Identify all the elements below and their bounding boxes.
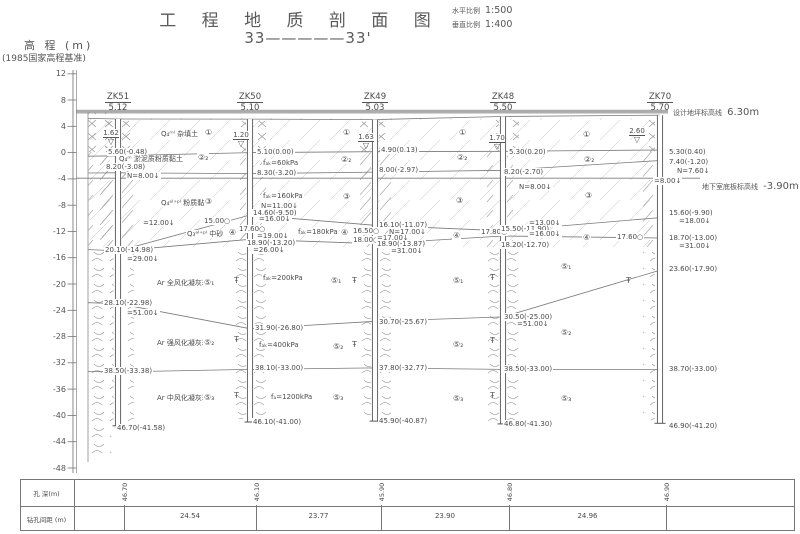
water-table-icon: ▽	[624, 137, 650, 143]
elevation-axis	[68, 70, 77, 473]
axis-tick-label: -44	[40, 437, 66, 446]
sample-marker-icon: Ŧ	[352, 341, 357, 349]
layer-number-label: ⑤₁	[203, 278, 215, 287]
water-level-mark: 1.70▽	[484, 125, 510, 150]
depth-label: 18.70(-13.00)	[668, 234, 718, 242]
borehole-id: ZK49	[362, 92, 388, 103]
layer-number-label: ④	[582, 233, 591, 242]
layer-number-label: ⑤₁	[452, 276, 464, 285]
sample-marker-icon: Ŧ	[490, 337, 495, 345]
elevation-datum-note: (1985国家高程基准)	[2, 51, 86, 64]
depth-label: N=7.60↓	[676, 167, 711, 175]
depth-label: Q₄ᵐˡ 杂填土	[160, 130, 199, 138]
axis-tick-label: -16	[40, 253, 66, 262]
depth-label: 46.80(-41.30)	[503, 420, 553, 428]
layer-number-label: ⑤₃	[332, 393, 344, 402]
layer-number-label: ③	[584, 191, 593, 200]
depth-label: 46.90(-41.20)	[668, 422, 718, 430]
table-depth-row-label: 孔 深(m)	[20, 488, 73, 498]
depth-label: Ar 全风化凝灰岩	[156, 279, 210, 287]
axis-tick-label: -48	[40, 464, 66, 473]
axis-tick-label: -32	[40, 358, 66, 367]
section-line-label: 33—————33'	[228, 29, 388, 47]
sample-marker-icon: Ŧ	[626, 277, 631, 285]
borehole-depth-value: 46.80	[506, 474, 514, 510]
layer-number-label: ④	[228, 228, 237, 237]
layer-number-label: ②₂	[197, 153, 209, 162]
borehole-elevation: 5.50	[482, 103, 524, 113]
sample-marker-icon: Ŧ	[234, 392, 239, 400]
depth-label: 17.60○	[616, 233, 644, 241]
axis-tick-label: -20	[40, 280, 66, 289]
depth-label: =29.00↓	[126, 255, 160, 263]
depth-label: N=8.00↓	[518, 183, 553, 191]
depth-label: 38.70(-33.00)	[668, 365, 718, 373]
depth-label: fₐₖ=160kPa	[262, 192, 304, 200]
layer-number-label: ①	[342, 128, 351, 137]
depth-label: fₐₖ=400kPa	[258, 341, 300, 349]
layer-number-label: ⑤₂	[452, 340, 464, 349]
water-level-mark: 1.20▽	[228, 122, 254, 147]
depth-label: =26.00↓	[252, 246, 286, 254]
axis-tick-label: -4	[40, 174, 66, 183]
borehole-depth-value: 46.10	[253, 474, 261, 510]
borehole-depth-value: 45.90	[378, 474, 386, 510]
layer-number-label: ②₂	[583, 155, 595, 164]
layer-number-label: ①	[582, 130, 591, 139]
depth-label: 30.70(-25.67)	[378, 318, 428, 326]
drawing-title: 工 程 地 质 剖 面 图	[150, 6, 450, 31]
axis-tick-label: 12	[40, 69, 66, 78]
layer-number-label: ⑤₃	[452, 394, 464, 403]
borehole-header: ZK505.10	[229, 84, 271, 113]
depth-label: 46.70(-41.58)	[116, 424, 166, 432]
borehole-depth-value: 46.90	[663, 474, 671, 510]
layer-number-label: ⑤₂	[332, 342, 344, 351]
depth-label: =16.00↓	[528, 230, 562, 238]
depth-label: 20.10(-14.98)	[104, 246, 154, 254]
layer-number-label: ⑤₁	[330, 276, 342, 285]
depth-label: 38.50(-33.00)	[503, 365, 553, 373]
depth-label: fₐₖ=200kPa	[262, 274, 304, 282]
design-ground-annotation: 设计地坪标高线 6.30m	[671, 100, 761, 119]
depth-label: Ar 中风化凝灰岩	[156, 394, 210, 402]
borehole-id: ZK70	[647, 92, 673, 103]
layer-number-label: ④	[340, 228, 349, 237]
depth-label: 23.60(-17.90)	[668, 265, 718, 273]
layer-number-label: ⑤₃	[560, 394, 572, 403]
borehole-id: ZK51	[105, 92, 131, 103]
table-cell-divider	[256, 505, 257, 531]
depth-label: 8.00(-2.97)	[378, 166, 419, 174]
layer-number-label: ⑤₁	[560, 262, 572, 271]
axis-tick-label: -36	[40, 385, 66, 394]
table-row-divider	[21, 506, 794, 507]
water-level-mark: 1.62▽	[98, 120, 124, 145]
depth-label: 31.90(-26.80)	[254, 324, 304, 332]
depth-label: fₐ=1200kPa	[270, 393, 313, 401]
borehole-header: ZK515.12	[97, 84, 139, 113]
table-spacing-row-label: 钻孔间距 (m)	[20, 514, 73, 524]
basement-floor-annotation: 地下室底板标高线 -3.90m	[700, 174, 800, 193]
depth-label: =31.00↓	[678, 242, 712, 250]
scale-block: 水平比例1:500 垂直比例1:400	[452, 5, 512, 33]
axis-tick-label: -24	[40, 306, 66, 315]
depth-label: 28.10(-22.98)	[103, 299, 153, 307]
layer-number-label: ⑤₃	[203, 393, 215, 402]
depth-label: 46.10(-41.00)	[252, 418, 302, 426]
sample-marker-icon: Ŧ	[234, 336, 239, 344]
borehole-spacing-value: 24.54	[160, 512, 220, 520]
axis-tick-label: -40	[40, 411, 66, 420]
borehole-table	[20, 479, 795, 531]
borehole-depth-value: 46.70	[121, 474, 129, 510]
depth-label: 8.20(-3.08)	[105, 163, 146, 171]
depth-label: 5.10(0.00)	[256, 148, 295, 156]
water-table-icon: ▽	[484, 144, 510, 150]
depth-label: fₐₖ=180kPa	[297, 228, 339, 236]
depth-label: =12.00↓	[142, 219, 176, 227]
axis-tick-label: 8	[40, 96, 66, 105]
depth-label: =51.00↓	[126, 309, 160, 317]
axis-tick-label: 0	[40, 148, 66, 157]
borehole-id: ZK50	[237, 92, 263, 103]
borehole-spacing-value: 24.96	[558, 512, 618, 520]
sample-marker-icon: Ŧ	[234, 277, 239, 285]
borehole-id: ZK48	[490, 92, 516, 103]
depth-label: 8.30(-3.20)	[256, 169, 297, 177]
axis-tick-label: -8	[40, 201, 66, 210]
layer-number-label: ③	[342, 192, 351, 201]
table-cell-divider	[124, 505, 125, 531]
depth-label: 18.20(-12.70)	[500, 241, 550, 249]
depth-label: 38.10(-33.00)	[254, 364, 304, 372]
layer-number-label: ①	[204, 128, 213, 137]
borehole-elevation: 5.10	[229, 103, 271, 113]
depth-label: =18.00↓	[678, 217, 712, 225]
layer-number-label: ③	[204, 197, 213, 206]
table-cell-divider	[381, 505, 382, 531]
borehole-spacing-value: 23.90	[415, 512, 475, 520]
depth-label: 37.80(-32.77)	[378, 364, 428, 372]
vertical-scale: 垂直比例1:400	[452, 19, 512, 33]
sample-marker-icon: Ŧ	[490, 274, 495, 282]
depth-label: fₐₖ=60kPa	[262, 159, 299, 167]
geological-section-drawing: 工 程 地 质 剖 面 图 33—————33' 水平比例1:500 垂直比例1…	[0, 0, 800, 534]
depth-label: =51.00↓	[516, 320, 550, 328]
depth-label: 4.90(0.13)	[380, 146, 419, 154]
depth-label: 45.90(-40.87)	[378, 417, 428, 425]
horizontal-scale: 水平比例1:500	[452, 5, 512, 19]
depth-label: 8.20(-2.70)	[503, 168, 544, 176]
depth-label: =31.00↓	[390, 247, 424, 255]
layer-number-label: ⑤₂	[560, 328, 572, 337]
borehole-elevation: 5.03	[354, 103, 396, 113]
axis-tick-label: -28	[40, 332, 66, 341]
depth-label: 38.50(-33.38)	[103, 367, 153, 375]
borehole-elevation: 5.70	[639, 103, 681, 113]
depth-label: 7.40(-1.20)	[668, 158, 709, 166]
borehole-elevation: 5.12	[97, 103, 139, 113]
depth-label: 5.30(0.40)	[668, 148, 707, 156]
depth-label: =8.00↓	[653, 177, 682, 185]
sample-marker-icon: Ŧ	[352, 277, 357, 285]
depth-label: 15.00○	[203, 217, 231, 225]
borehole-header: ZK485.50	[482, 84, 524, 113]
axis-tick-label: -12	[40, 227, 66, 236]
sample-marker-icon: Ŧ	[490, 392, 495, 400]
depth-label: N=8.00↓	[126, 172, 161, 180]
depth-label: Q₃ᵃˡ⁺ᵖˡ 中砂	[186, 230, 224, 238]
layer-number-label: ⑤₂	[203, 338, 215, 347]
layer-number-label: ①	[458, 128, 467, 137]
depth-label: Q₄ᵐ 淤泥质粉质黏土	[118, 155, 184, 163]
layer-number-label: ②₂	[456, 153, 468, 162]
layer-number-label: ③	[455, 196, 464, 205]
layer-number-label: ②₂	[340, 155, 352, 164]
borehole-spacing-value: 23.77	[289, 512, 349, 520]
axis-tick-label: 4	[40, 122, 66, 131]
water-table-icon: ▽	[98, 139, 124, 145]
borehole-header: ZK495.03	[354, 84, 396, 113]
borehole-header: ZK705.70	[639, 84, 681, 113]
depth-label: 5.30(0.20)	[508, 148, 547, 156]
table-cell-divider	[509, 505, 510, 531]
water-table-icon: ▽	[228, 141, 254, 147]
water-level-mark: 1.63▽	[353, 124, 379, 149]
water-table-icon: ▽	[353, 143, 379, 149]
water-level-mark: 2.60▽	[624, 118, 650, 143]
depth-label: =16.00↓	[258, 215, 292, 223]
depth-label: 15.60(-9.90)	[668, 209, 714, 217]
layer-number-label: ④	[452, 231, 461, 240]
table-cell-divider	[666, 505, 667, 531]
depth-label: Ar 强风化凝灰岩	[156, 339, 210, 347]
